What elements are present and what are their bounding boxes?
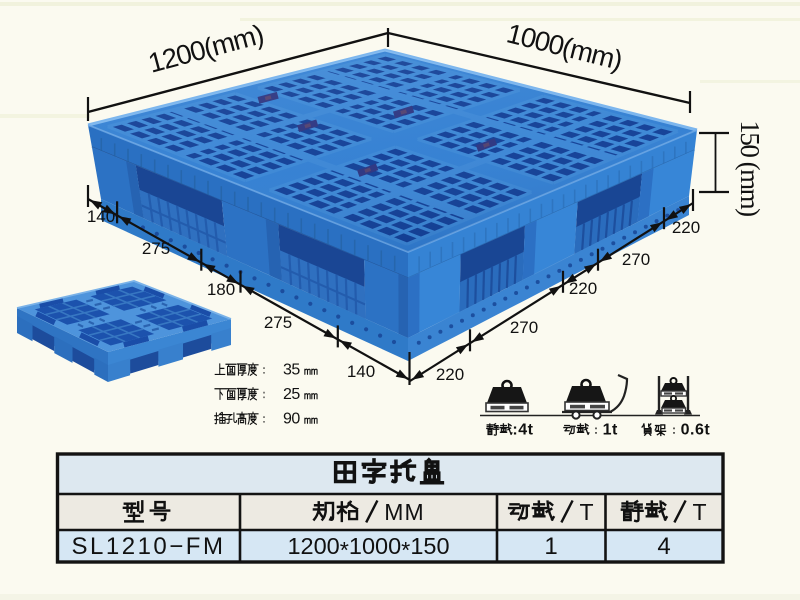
svg-text:T: T — [693, 499, 708, 525]
svg-text:35: 35 — [283, 362, 300, 379]
svg-text:270: 270 — [622, 250, 650, 269]
svg-text:1: 1 — [544, 533, 557, 560]
svg-text:275: 275 — [142, 239, 170, 258]
svg-text:MM: MM — [384, 499, 424, 525]
svg-text:4: 4 — [657, 533, 670, 560]
svg-text:SL1210−FM: SL1210−FM — [72, 533, 226, 560]
svg-text:140: 140 — [87, 207, 115, 226]
svg-text:220: 220 — [436, 365, 464, 384]
svg-text:0.6t: 0.6t — [681, 422, 711, 439]
svg-text:1t: 1t — [603, 422, 618, 439]
svg-text:25: 25 — [283, 386, 300, 403]
svg-text:140: 140 — [347, 362, 375, 381]
svg-text:180: 180 — [207, 280, 235, 299]
svg-text:220: 220 — [569, 279, 597, 298]
svg-text:270: 270 — [510, 318, 538, 337]
svg-text:150 (mm): 150 (mm) — [735, 120, 765, 216]
svg-text::4t: :4t — [512, 422, 533, 439]
svg-text:220: 220 — [672, 218, 700, 237]
svg-text:90: 90 — [283, 411, 300, 428]
svg-text:T: T — [580, 499, 595, 525]
svg-text:275: 275 — [264, 313, 292, 332]
svg-text:1200*1000*150: 1200*1000*150 — [287, 533, 449, 563]
